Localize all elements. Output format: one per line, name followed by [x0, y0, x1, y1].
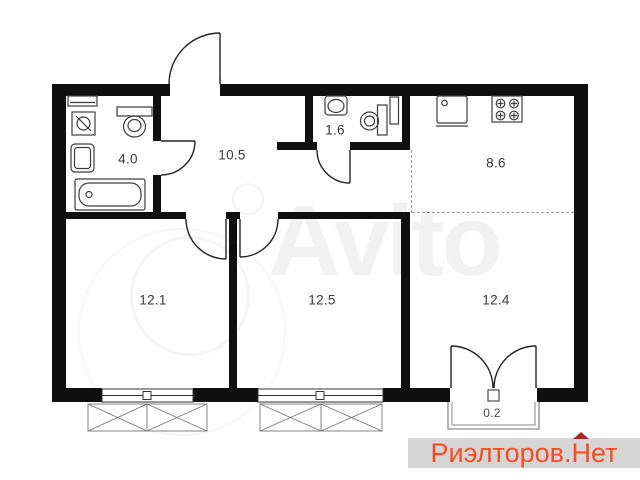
- balcony-door-handle: [488, 390, 499, 401]
- entrance-door-arc: [169, 33, 220, 84]
- bathroom-sink: [71, 144, 94, 172]
- wc-door-arc: [317, 150, 350, 183]
- room-area-label-bathroom: 4.0: [118, 152, 138, 167]
- wc-boiler: [390, 97, 399, 124]
- floorplan-linework: [0, 0, 640, 480]
- balcony-door-right-arc: [494, 346, 536, 388]
- bedroom-2-door: [240, 219, 278, 257]
- washing-machine: [72, 112, 95, 135]
- bathroom-door: [161, 141, 195, 175]
- brand-watermark: Риэлторов.Нет: [408, 438, 640, 468]
- toilet: [117, 107, 152, 137]
- bedroom-2-door-arc: [240, 219, 278, 257]
- room-area-label-bedroom-2: 12.5: [308, 293, 335, 308]
- room-area-label-kitchen: 8.6: [486, 156, 506, 171]
- room-area-label-hallway: 10.5: [218, 148, 245, 163]
- room-area-label-wc: 1.6: [325, 123, 345, 138]
- entrance-door: [169, 33, 221, 84]
- brand-text: Риэлторов.Нет: [431, 438, 618, 468]
- wc-sink: [325, 96, 347, 115]
- kitchen-sink: [436, 96, 468, 126]
- bedroom-2-window: [258, 389, 383, 402]
- room-area-label-bedroom-1: 12.1: [139, 293, 166, 308]
- wc-toilet: [361, 105, 388, 135]
- floorplan-image: Avito: [0, 0, 640, 480]
- bathtub: [75, 179, 145, 210]
- bedroom-1-window: [102, 389, 193, 402]
- balcony-door-left-arc: [451, 346, 493, 388]
- wc-door: [317, 150, 350, 183]
- roof-icon: [573, 432, 589, 439]
- bedroom-2-window-sill-box: [260, 404, 382, 431]
- bedroom-1-window-sill-box: [88, 404, 207, 431]
- bedroom-1-door: [186, 219, 226, 259]
- room-area-label-balcony: 0.2: [483, 406, 501, 420]
- balcony-french-doors: [451, 346, 536, 401]
- bedroom-1-door-arc: [186, 219, 226, 259]
- bathroom-shelf: [68, 96, 97, 106]
- stove: [492, 96, 522, 122]
- bathroom-door-arc: [161, 141, 195, 175]
- room-area-label-living: 12.4: [482, 293, 509, 308]
